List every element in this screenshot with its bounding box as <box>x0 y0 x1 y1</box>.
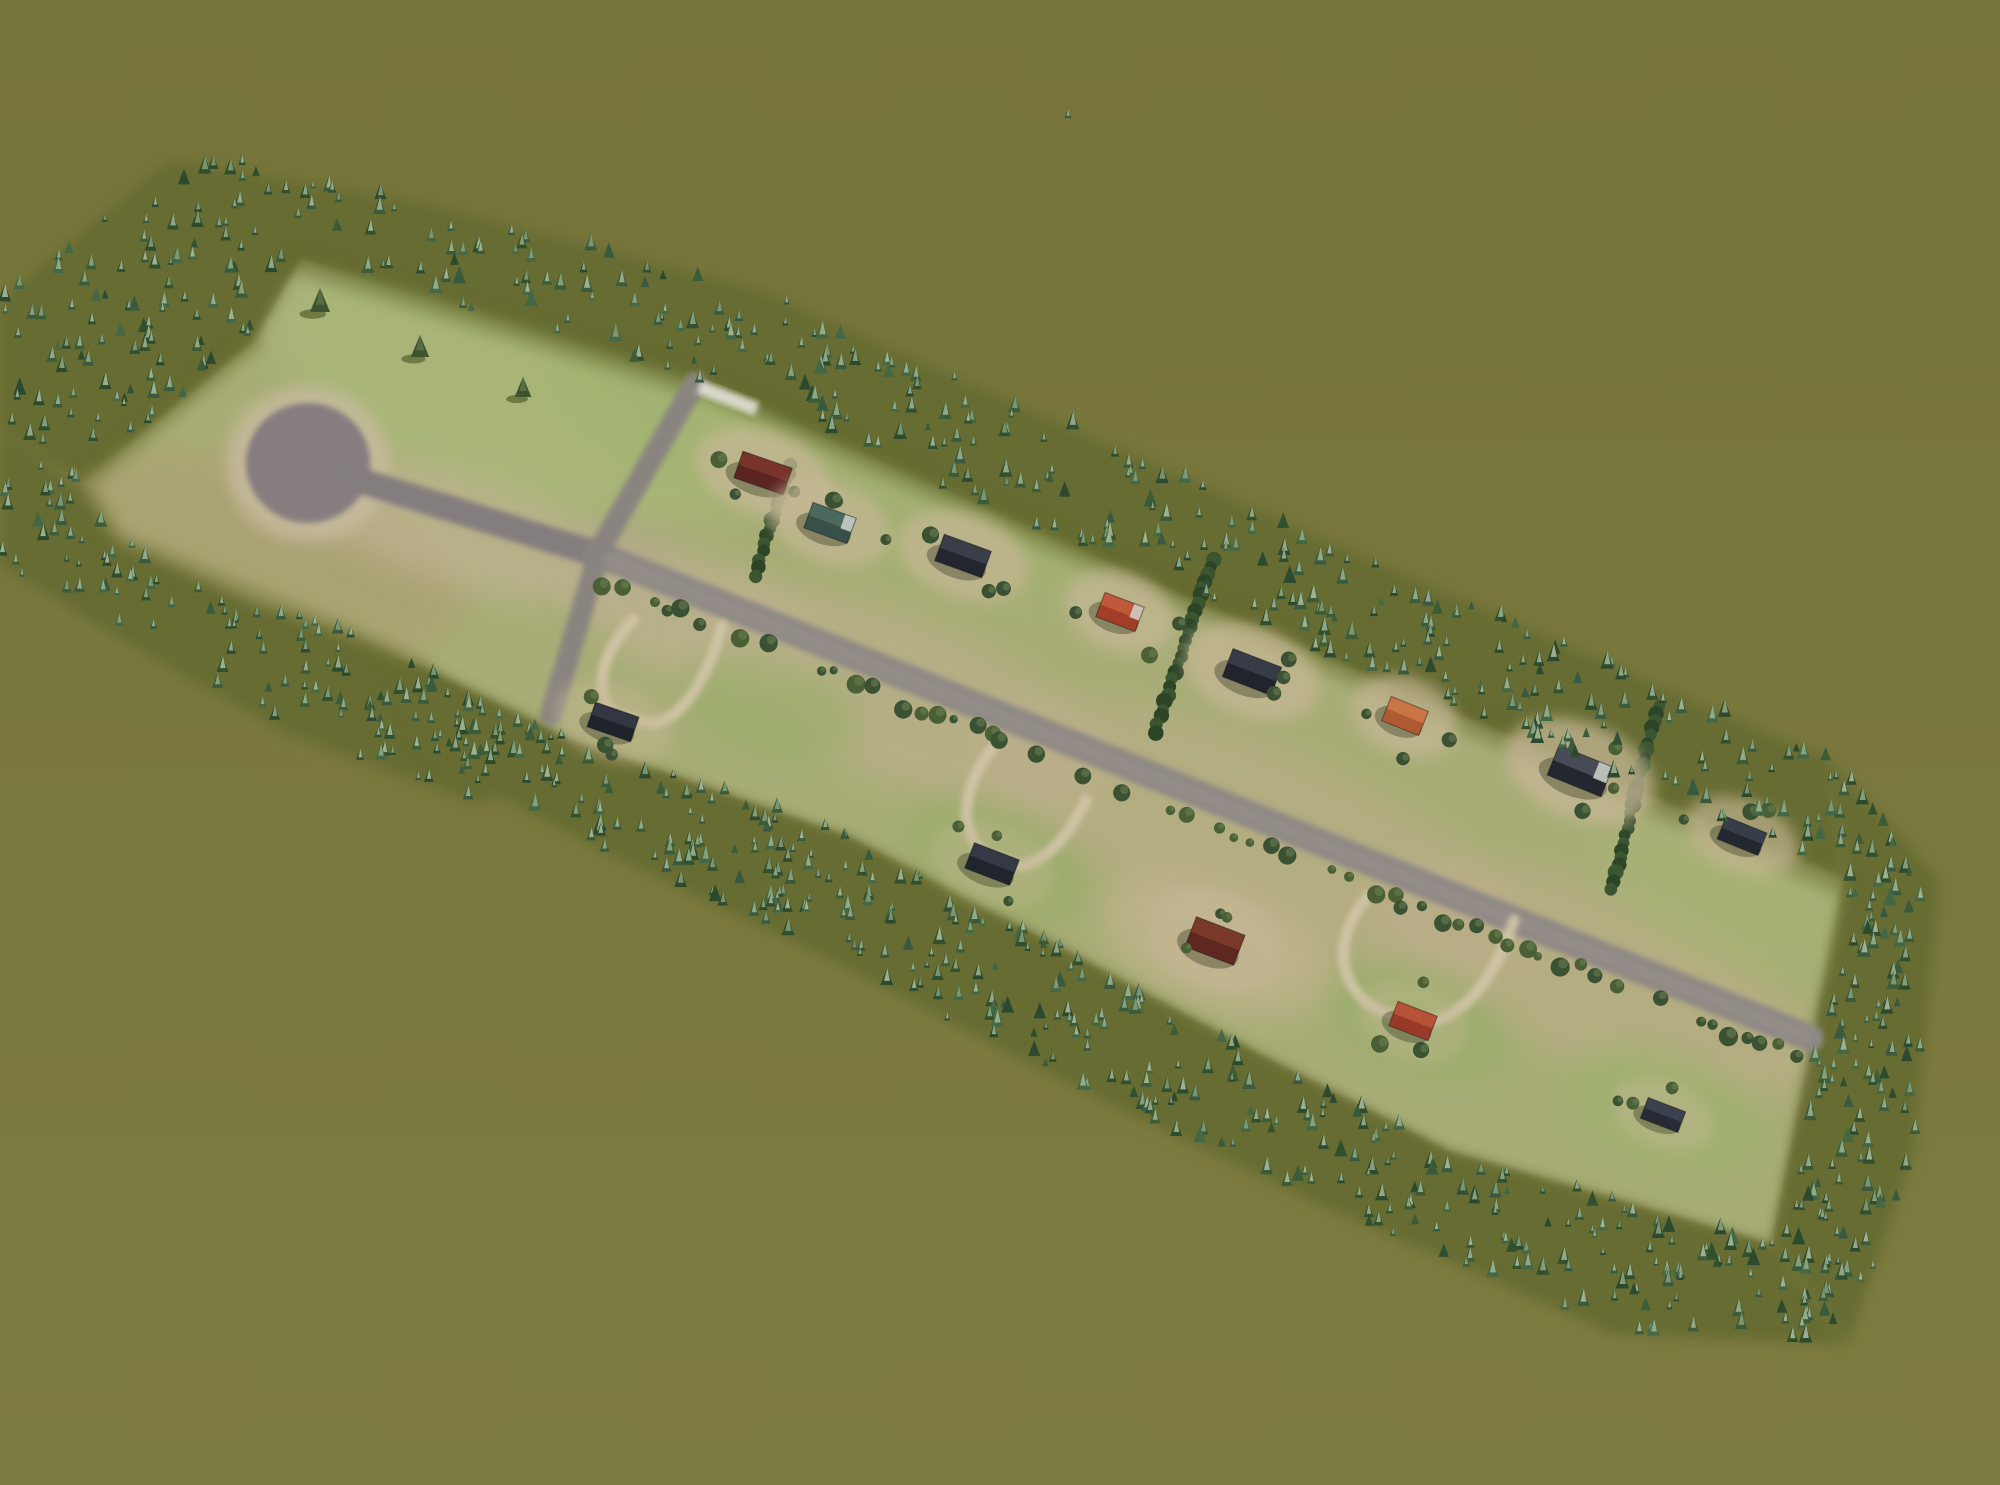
bush-highlight <box>1394 888 1402 896</box>
bush-highlight <box>1593 969 1601 977</box>
bush-highlight <box>1374 887 1383 896</box>
bush-highlight <box>767 635 776 644</box>
bush-highlight <box>1506 940 1513 947</box>
bush-highlight <box>1726 1028 1736 1038</box>
bush-highlight <box>666 606 672 612</box>
bush-highlight <box>901 702 910 711</box>
bush-highlight <box>1494 931 1501 938</box>
aerial-scene <box>0 0 2000 1485</box>
bush-highlight <box>600 579 609 588</box>
bush-highlight <box>1758 1037 1766 1045</box>
bush-highlight <box>1120 785 1129 794</box>
bush-highlight <box>1746 1033 1752 1039</box>
bush-highlight <box>1035 747 1044 756</box>
bush-highlight <box>997 733 1006 742</box>
bush-highlight <box>1285 848 1294 857</box>
bush-highlight <box>1399 902 1406 909</box>
bush-highlight <box>698 619 705 626</box>
bush-highlight <box>1270 839 1278 847</box>
hedge-shrub <box>749 570 762 583</box>
bush-highlight <box>1616 980 1623 987</box>
bush-highlight <box>1475 919 1482 926</box>
bush-highlight <box>654 598 659 603</box>
bush-highlight <box>1457 920 1463 926</box>
bush-highlight <box>1659 992 1667 1000</box>
bush-highlight <box>738 630 747 639</box>
bush-highlight <box>1558 959 1568 969</box>
bush-highlight <box>1170 806 1175 811</box>
bush-highlight <box>821 667 826 672</box>
hedge-shrub <box>1148 725 1164 741</box>
bush-highlight <box>1249 839 1253 843</box>
bush-highlight <box>833 667 837 671</box>
bush-highlight <box>854 676 863 685</box>
bush-highlight <box>1580 959 1586 965</box>
bush-highlight <box>976 718 985 727</box>
bush-highlight <box>1233 834 1237 838</box>
bush-highlight <box>1537 953 1541 957</box>
culdesac-bulb[interactable] <box>246 403 370 523</box>
bush-highlight <box>1331 866 1335 870</box>
bush-highlight <box>1348 872 1353 877</box>
bush-highlight <box>679 601 688 610</box>
bush-highlight <box>1711 1020 1716 1025</box>
bush-highlight <box>1421 902 1426 907</box>
bush-highlight <box>621 580 629 588</box>
bush-highlight <box>1700 1017 1705 1022</box>
game-viewport[interactable] <box>0 0 2000 1485</box>
bush-highlight <box>1795 1051 1802 1058</box>
bush-highlight <box>1218 823 1224 829</box>
bush-highlight <box>1777 1039 1783 1045</box>
bush-highlight <box>1081 769 1089 777</box>
bush-highlight <box>1526 942 1535 951</box>
bush-highlight <box>936 707 945 716</box>
bush-highlight <box>1185 808 1193 816</box>
bush-highlight <box>1441 916 1450 925</box>
bush-highlight <box>953 716 957 720</box>
bush-highlight <box>871 679 879 687</box>
hedge-shrub <box>1605 883 1618 896</box>
bush-highlight <box>920 708 927 715</box>
